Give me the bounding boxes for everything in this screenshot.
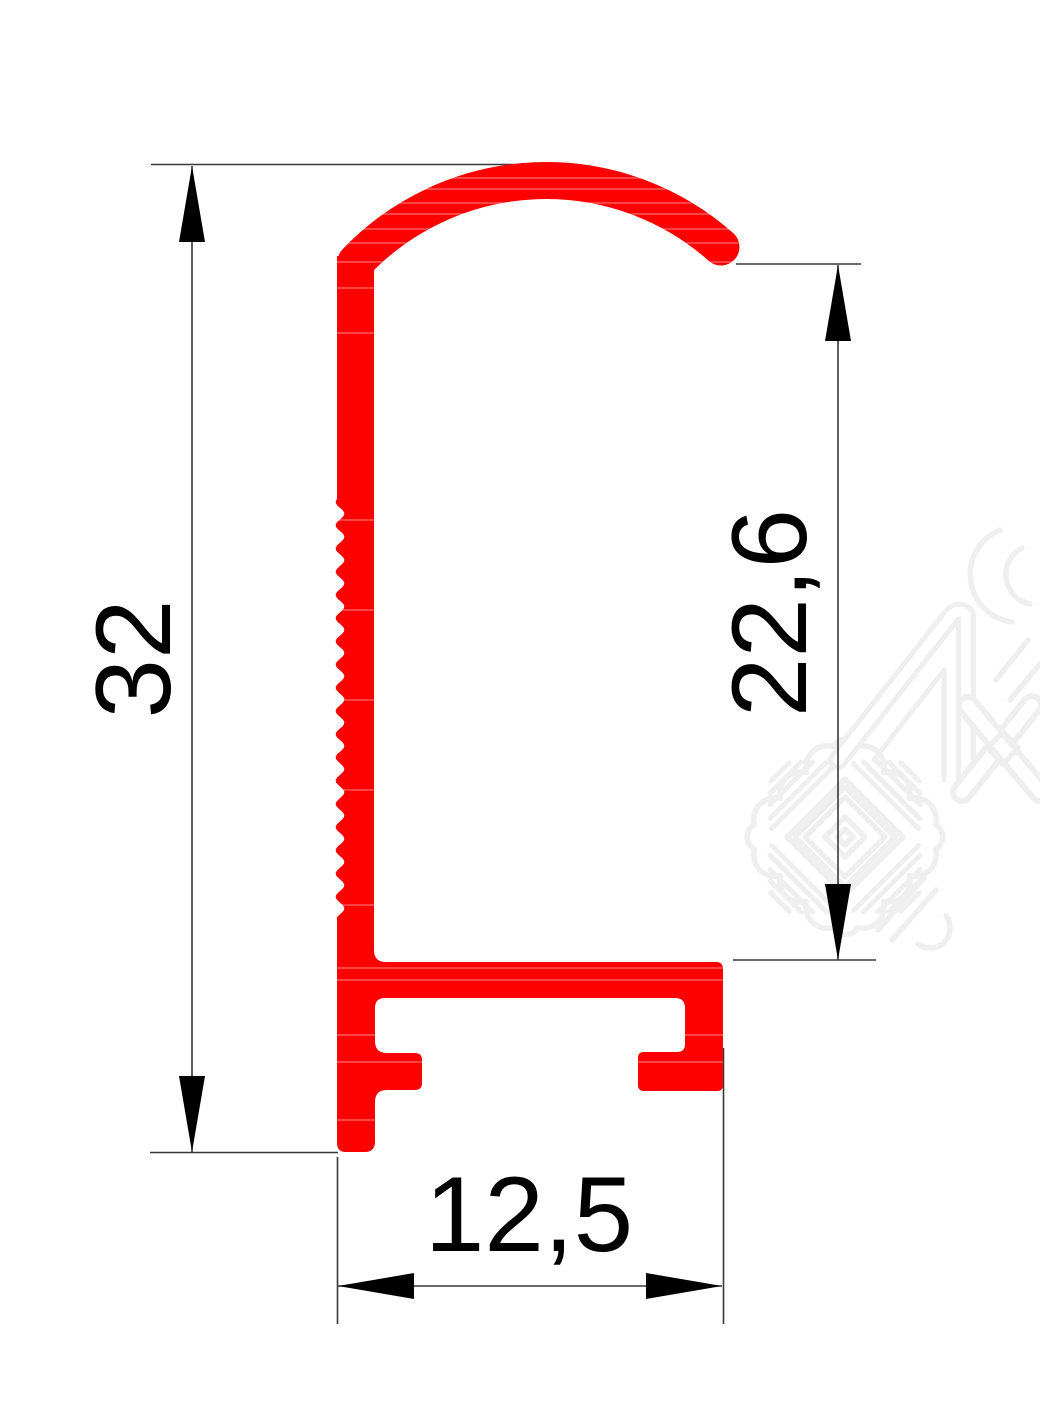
svg-text:22,6: 22,6: [709, 509, 829, 717]
svg-text:32: 32: [73, 599, 193, 718]
svg-text:12,5: 12,5: [425, 1154, 633, 1274]
